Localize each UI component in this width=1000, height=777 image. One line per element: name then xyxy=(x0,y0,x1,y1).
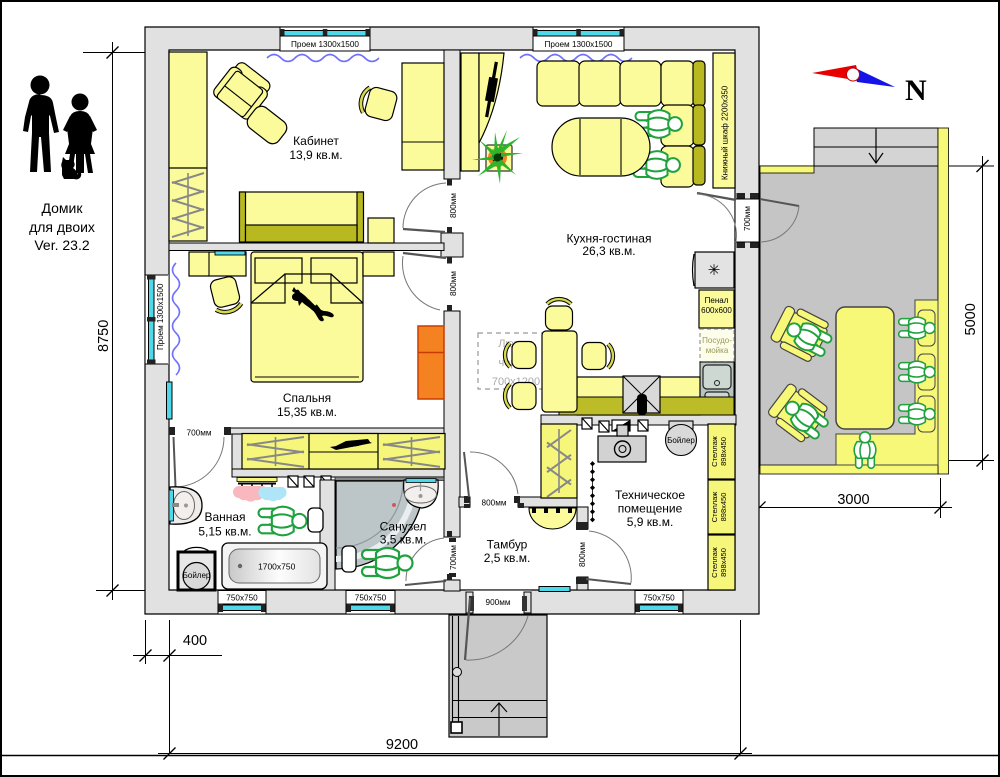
svg-text:800мм: 800мм xyxy=(449,193,458,218)
svg-text:Спальня: Спальня xyxy=(283,391,331,405)
svg-text:750x750: 750x750 xyxy=(643,594,675,603)
svg-text:600x600: 600x600 xyxy=(701,306,732,315)
svg-text:N: N xyxy=(905,74,927,107)
svg-text:898x450: 898x450 xyxy=(719,493,728,522)
svg-text:Санузел: Санузел xyxy=(380,520,427,534)
svg-text:Проем 1300x1500: Проем 1300x1500 xyxy=(545,40,613,49)
svg-text:3000: 3000 xyxy=(837,492,869,508)
svg-text:Стеллаж: Стеллаж xyxy=(710,547,719,578)
svg-text:15,35 кв.м.: 15,35 кв.м. xyxy=(277,405,337,419)
svg-text:2,5 кв.м.: 2,5 кв.м. xyxy=(484,551,531,565)
svg-text:Ванная: Ванная xyxy=(204,510,245,524)
svg-text:Проем 1300x1500: Проем 1300x1500 xyxy=(156,283,165,350)
svg-text:Домик: Домик xyxy=(42,200,84,216)
svg-text:8750: 8750 xyxy=(96,320,112,352)
svg-text:750x750: 750x750 xyxy=(355,594,387,603)
svg-text:400: 400 xyxy=(183,633,207,649)
svg-text:для двоих: для двоих xyxy=(29,219,95,235)
svg-text:Стеллаж: Стеллаж xyxy=(710,436,719,467)
svg-text:Тамбур: Тамбур xyxy=(487,538,528,552)
svg-text:3,5 кв.м.: 3,5 кв.м. xyxy=(380,533,427,547)
svg-text:800мм: 800мм xyxy=(578,542,587,567)
svg-text:800мм: 800мм xyxy=(482,499,507,508)
svg-text:Проем 1300x1500: Проем 1300x1500 xyxy=(291,40,359,49)
svg-text:700мм: 700мм xyxy=(743,206,752,231)
svg-text:5000: 5000 xyxy=(963,303,979,335)
svg-text:Книжный шкаф 2200х350: Книжный шкаф 2200х350 xyxy=(721,85,730,180)
svg-text:898x450: 898x450 xyxy=(719,548,728,577)
svg-text:Бойлер: Бойлер xyxy=(183,571,211,580)
svg-text:700мм: 700мм xyxy=(187,429,212,438)
svg-text:Ver. 23.2: Ver. 23.2 xyxy=(34,237,89,253)
svg-text:Стеллаж: Стеллаж xyxy=(710,492,719,523)
svg-text:26,3 кв.м.: 26,3 кв.м. xyxy=(582,244,635,258)
svg-text:13,9 кв.м.: 13,9 кв.м. xyxy=(289,148,342,162)
svg-text:Кабинет: Кабинет xyxy=(293,134,339,148)
svg-text:Бойлер: Бойлер xyxy=(667,436,695,445)
svg-text:✳: ✳ xyxy=(708,262,721,279)
svg-text:800мм: 800мм xyxy=(449,271,458,296)
svg-text:750x750: 750x750 xyxy=(226,594,258,603)
svg-text:5,15 кв.м.: 5,15 кв.м. xyxy=(198,525,251,539)
svg-text:Техническое: Техническое xyxy=(615,488,685,502)
svg-text:700мм: 700мм xyxy=(449,545,458,570)
svg-text:мойка: мойка xyxy=(706,346,729,355)
svg-text:900мм: 900мм xyxy=(486,598,511,607)
svg-text:898x450: 898x450 xyxy=(719,437,728,466)
svg-text:9200: 9200 xyxy=(386,737,418,753)
svg-text:помещение: помещение xyxy=(618,502,683,516)
svg-text:Посудо-: Посудо- xyxy=(702,336,732,345)
svg-text:Пенал: Пенал xyxy=(705,296,729,305)
svg-text:5,9 кв.м.: 5,9 кв.м. xyxy=(627,515,674,529)
svg-text:1700x750: 1700x750 xyxy=(258,562,296,572)
